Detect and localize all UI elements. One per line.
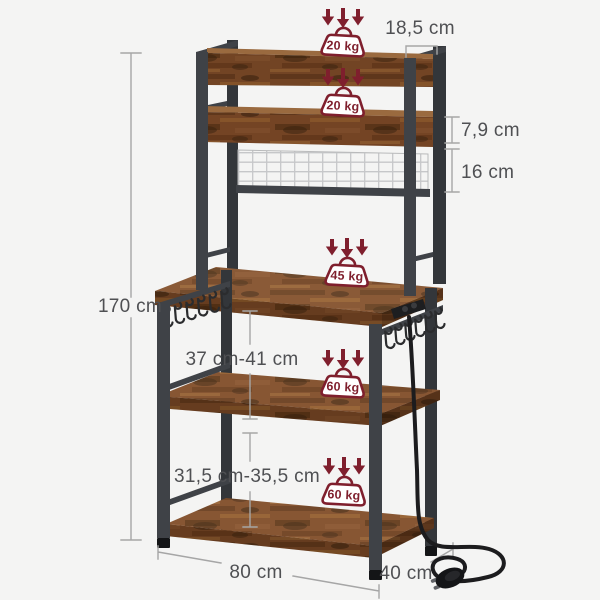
dimension-label: 37 cm-41 cm <box>185 349 298 370</box>
weight-label: 60 kg <box>327 487 361 503</box>
dimension-label: 31,5 cm-35,5 cm <box>174 466 320 487</box>
down-arrows-icon <box>322 8 364 28</box>
dimension-label: 7,9 cm <box>461 120 520 141</box>
down-arrows-icon <box>326 238 368 258</box>
down-arrows-icon <box>322 349 364 369</box>
product-dimension-diagram: 20 kg 20 kg 45 kg <box>0 0 600 600</box>
down-arrows-icon <box>322 68 364 88</box>
top-shelf <box>207 48 433 87</box>
socket-icon <box>402 306 408 312</box>
dimension-label: 40 cm <box>379 563 432 584</box>
dimension-label: 16 cm <box>461 162 514 183</box>
wire-mesh-panel <box>236 150 430 197</box>
weight-label: 60 kg <box>326 379 360 395</box>
front-left-foot <box>157 538 170 548</box>
dimension-label: 170 cm <box>98 296 162 317</box>
back-right-foot <box>425 546 437 556</box>
down-arrows-icon <box>323 457 365 477</box>
dimension-label: 18,5 cm <box>385 18 455 39</box>
weight-label: 45 kg <box>330 268 364 284</box>
second-shelf <box>203 106 433 147</box>
socket-icon <box>411 303 417 309</box>
dimension-label: 80 cm <box>229 562 282 583</box>
weight-label: 20 kg <box>326 38 360 54</box>
weight-label: 20 kg <box>326 98 360 114</box>
